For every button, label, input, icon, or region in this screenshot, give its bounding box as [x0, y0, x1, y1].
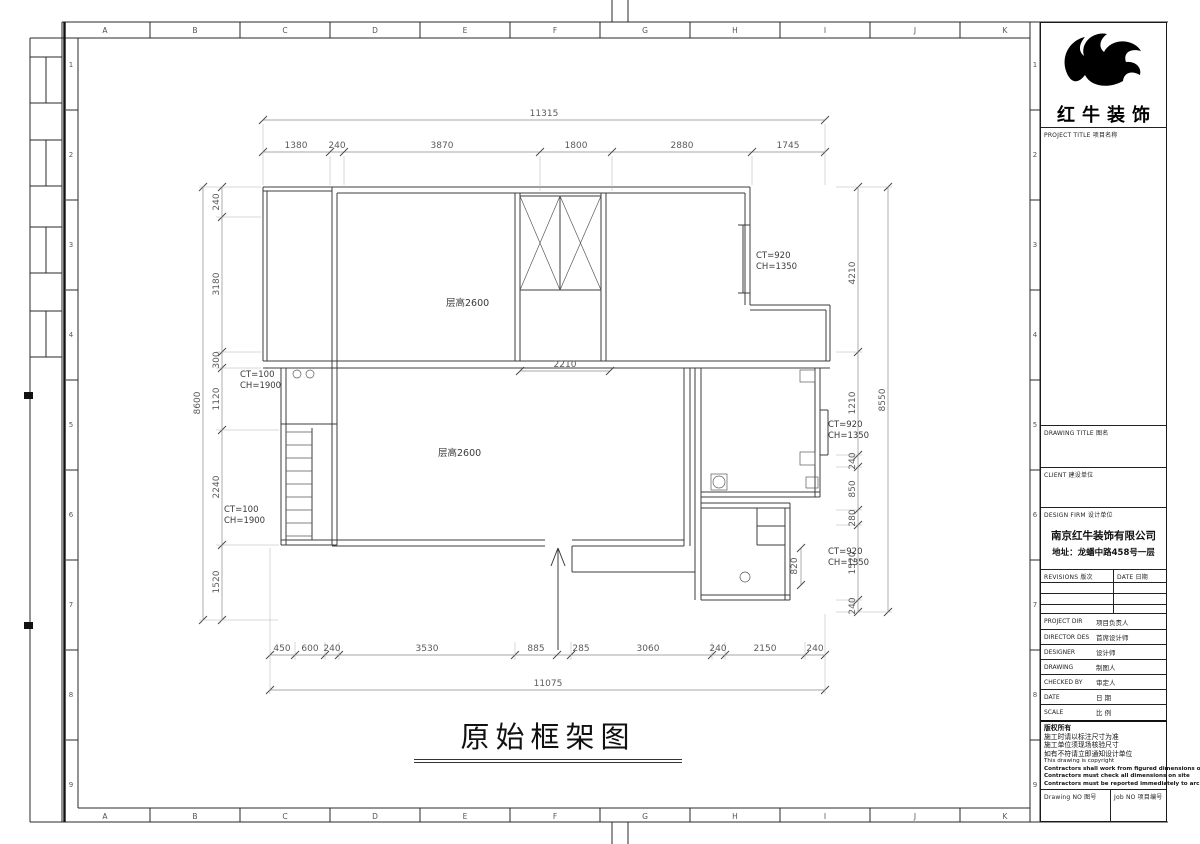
row-label-zh: 制图人	[1096, 662, 1116, 672]
dim-label: 240	[709, 644, 726, 654]
dim-label: 8600	[193, 391, 203, 414]
ruler-letter: A	[95, 810, 115, 823]
ruler-number: 8	[64, 689, 78, 701]
title-underline	[414, 762, 682, 763]
row-label-zh: 比 例	[1096, 707, 1111, 717]
dim-label: 240	[323, 644, 340, 654]
row-label-en: DIRECTOR DES	[1041, 634, 1096, 641]
dim-label: 280	[848, 509, 858, 526]
dim-label: 8550	[878, 388, 888, 411]
ruler-number: 1	[64, 59, 78, 71]
dim-label: 240	[328, 141, 345, 151]
ruler-letter: F	[545, 24, 565, 37]
revisions-row-line	[1041, 604, 1166, 605]
ruler-number: 4	[64, 329, 78, 341]
row-label-en: PROJECT DIR	[1041, 618, 1096, 625]
ruler-letter: K	[995, 810, 1015, 823]
revisions-row-line	[1041, 582, 1166, 583]
fold-mark	[24, 392, 33, 399]
dim-label: 1380	[285, 141, 308, 151]
ruler-number: 9	[64, 779, 78, 791]
firm-name: 南京红牛装饰有限公司	[1041, 528, 1166, 543]
plumbing-fixtures	[293, 370, 818, 582]
dim-label: 3870	[431, 141, 454, 151]
drawing-no-label: Drawing NO 图号	[1041, 790, 1110, 801]
note-line: This drawing is copyright	[1044, 758, 1166, 765]
row-label-zh: 首席设计师	[1096, 632, 1129, 642]
dim-label: 240	[212, 193, 222, 210]
note-line: Contractors must be reported immediately…	[1044, 781, 1166, 788]
dim-label: 240	[848, 452, 858, 469]
drawing-sheet: 11315 1380 240 3870 1800 2880 1745 450 6…	[0, 0, 1200, 844]
bull-logo-icon	[1041, 25, 1165, 101]
dim-label: 3060	[637, 644, 660, 654]
number-section: Drawing NO 图号 Job NO 项目编号	[1041, 789, 1166, 821]
revisions-label: REVISIONS 版次	[1041, 570, 1095, 581]
ruler-letter: D	[365, 810, 385, 823]
dim-label: 1800	[565, 141, 588, 151]
dim-label: 3180	[212, 272, 222, 295]
personnel-row: DRAWING 制图人	[1041, 659, 1166, 674]
row-label-en: DRAWING	[1041, 664, 1096, 671]
dim-label: 3530	[416, 644, 439, 654]
note-line: 版权所有	[1044, 724, 1166, 733]
window-label: CT=920	[756, 251, 790, 261]
project-title-section: PROJECT TITLE 项目名称	[1041, 127, 1166, 425]
date-column-label: DATE 日期	[1114, 570, 1150, 581]
window-label: CH=1350	[828, 558, 869, 568]
dim-label: 450	[273, 644, 290, 654]
title-underline	[414, 759, 682, 760]
dim-label: 11075	[534, 679, 563, 689]
window-label: CT=920	[828, 547, 862, 557]
dim-label: 300	[212, 351, 222, 368]
dim-label: 2880	[671, 141, 694, 151]
window-label: CT=920	[828, 420, 862, 430]
ruler-letter: H	[725, 24, 745, 37]
entry-arrow	[551, 548, 565, 650]
room-height-label: 层高2600	[446, 297, 489, 309]
dimension-lines	[199, 116, 892, 694]
personnel-row: DATE 日 期	[1041, 689, 1166, 704]
plan-labels: 层高2600 层高2600 CT=100 CH=1900 CT=100 CH=1…	[224, 251, 869, 568]
ruler-letter: H	[725, 810, 745, 823]
ruler-number: 2	[64, 149, 78, 161]
design-firm-section: DESIGN FIRM 设计单位 南京红牛装饰有限公司 地址：龙蟠中路458号一…	[1041, 507, 1166, 569]
ruler-letter: G	[635, 810, 655, 823]
note-line: 施工单位须现场核验尺寸	[1044, 741, 1166, 750]
dim-label: 2150	[754, 644, 777, 654]
ruler-letter: E	[455, 810, 475, 823]
row-label-zh: 日 期	[1096, 692, 1111, 702]
ruler-letter: A	[95, 24, 115, 37]
note-line: 施工时请以标注尺寸为准	[1044, 733, 1166, 742]
note-line: 如有不符请立即通知设计单位	[1044, 750, 1166, 759]
row-label-en: CHECKED BY	[1041, 679, 1096, 686]
dim-label: 885	[527, 644, 544, 654]
firm-address: 地址：龙蟠中路458号一层	[1041, 546, 1166, 558]
dim-label: 240	[806, 644, 823, 654]
row-label-en: SCALE	[1041, 709, 1096, 716]
title-block: 红牛装饰 PROJECT TITLE 项目名称 DRAWING TITLE 图名…	[1040, 22, 1167, 822]
design-firm-label: DESIGN FIRM 设计单位	[1041, 508, 1166, 519]
drawing-no-cell: Drawing NO 图号	[1041, 790, 1111, 821]
ruler-letter: D	[365, 24, 385, 37]
ruler-letter: I	[815, 24, 835, 37]
job-no-cell: Job NO 项目编号	[1111, 790, 1166, 821]
project-title-label: PROJECT TITLE 项目名称	[1041, 128, 1166, 139]
revisions-section: REVISIONS 版次 DATE 日期	[1041, 569, 1166, 613]
dim-label: 4210	[848, 261, 858, 284]
job-no-label: Job NO 项目编号	[1111, 790, 1166, 801]
dim-label: 2240	[212, 475, 222, 498]
window-label: CH=1350	[756, 262, 797, 272]
personnel-section: PROJECT DIR 项目负责人 DIRECTOR DES 首席设计师 DES…	[1041, 613, 1166, 718]
dim-label: 850	[848, 480, 858, 497]
row-label-zh: 设计师	[1096, 647, 1116, 657]
ruler-letter: E	[455, 24, 475, 37]
ruler-letter: F	[545, 810, 565, 823]
ruler-letter: B	[185, 810, 205, 823]
row-label-en: DATE	[1041, 694, 1096, 701]
ruler-number: 5	[64, 419, 78, 431]
room-height-label: 层高2600	[438, 447, 481, 459]
personnel-row: DIRECTOR DES 首席设计师	[1041, 629, 1166, 644]
dim-label: 2210	[554, 360, 577, 370]
window-label: CT=100	[240, 370, 274, 380]
plan-title: 原始框架图	[414, 714, 682, 756]
window-label: CH=1900	[240, 381, 281, 391]
personnel-row: SCALE 比 例	[1041, 704, 1166, 719]
dim-label: 1120	[212, 387, 222, 410]
ruler-letter: J	[905, 24, 925, 37]
note-line: Contractors shall work from figured dime…	[1044, 766, 1166, 773]
personnel-row: CHECKED BY 审定人	[1041, 674, 1166, 689]
client-label: CLIENT 建设单位	[1041, 468, 1166, 479]
dim-label: 240	[848, 597, 858, 614]
drawing-title-label: DRAWING TITLE 图名	[1041, 426, 1166, 437]
ruler-number: 6	[64, 509, 78, 521]
personnel-row: PROJECT DIR 项目负责人	[1041, 614, 1166, 629]
ruler-letter: I	[815, 810, 835, 823]
ruler-letter: B	[185, 24, 205, 37]
dim-label: 1745	[777, 141, 800, 151]
ruler-letter: J	[905, 810, 925, 823]
window-label: CH=1900	[224, 516, 265, 526]
revisions-row-line	[1041, 593, 1166, 594]
dim-label: 1520	[212, 570, 222, 593]
ruler-letter: G	[635, 24, 655, 37]
dim-label: 820	[790, 557, 800, 574]
dim-label: 600	[301, 644, 318, 654]
personnel-row: DESIGNER 设计师	[1041, 644, 1166, 659]
row-label-zh: 审定人	[1096, 677, 1116, 687]
note-line: Contractors must check all dimensions on…	[1044, 773, 1166, 780]
client-section: CLIENT 建设单位	[1041, 467, 1166, 507]
notes-section: 版权所有 施工时请以标注尺寸为准 施工单位须现场核验尺寸 如有不符请立即通知设计…	[1041, 720, 1166, 788]
ruler-letter: C	[275, 24, 295, 37]
ruler-number: 7	[64, 599, 78, 611]
floorplan-walls	[263, 187, 830, 650]
ruler-letter: C	[275, 810, 295, 823]
dim-label: 1210	[848, 391, 858, 414]
drawing-title-section: DRAWING TITLE 图名	[1041, 425, 1166, 467]
dim-label: 11315	[530, 109, 559, 119]
fold-mark	[24, 622, 33, 629]
window-label: CH=1350	[828, 431, 869, 441]
dim-label: 285	[572, 644, 589, 654]
brand-name: 红牛装饰	[1041, 101, 1166, 127]
plan-title-block: 原始框架图	[414, 714, 682, 763]
ruler-letter: K	[995, 24, 1015, 37]
ruler-number: 3	[64, 239, 78, 251]
window-label: CT=100	[224, 505, 258, 515]
row-label-en: DESIGNER	[1041, 649, 1096, 656]
row-label-zh: 项目负责人	[1096, 617, 1129, 627]
